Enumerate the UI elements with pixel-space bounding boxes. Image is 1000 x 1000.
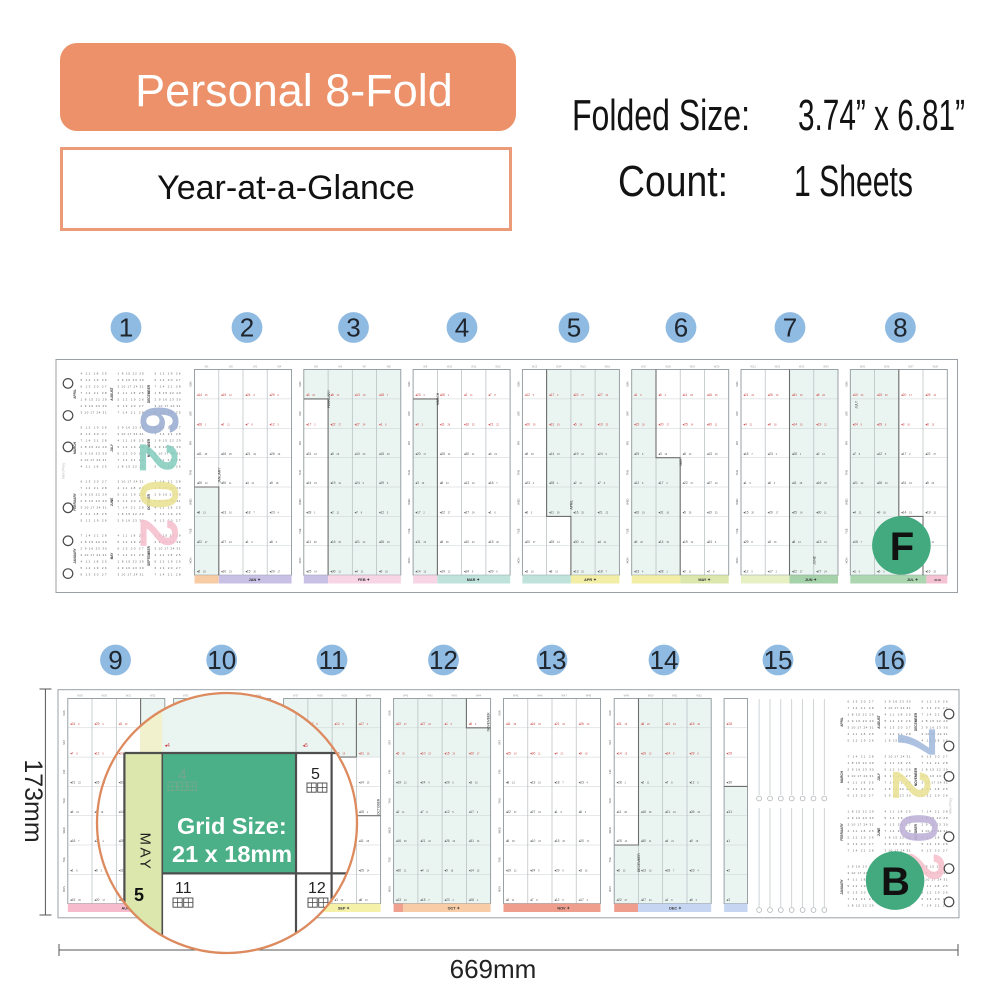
svg-text:0: 0 [129, 479, 189, 509]
svg-text:OCTOBER: OCTOBER [377, 798, 381, 815]
svg-text:◂234: ◂234 [525, 481, 535, 485]
svg-text:APRIL: APRIL [840, 717, 844, 727]
svg-text:◂296: ◂296 [444, 781, 454, 785]
svg-text:MON: MON [844, 557, 848, 563]
svg-text:W7: W7 [362, 365, 366, 369]
svg-text:◂187: ◂187 [554, 781, 564, 785]
svg-text:◂249: ◂249 [355, 481, 365, 485]
svg-text:W45: W45 [513, 694, 519, 698]
svg-text:W12: W12 [495, 365, 501, 369]
svg-text:FRI: FRI [407, 441, 411, 445]
svg-text:W1: W1 [205, 365, 209, 369]
svg-text:◂28: ◂28 [726, 722, 732, 726]
svg-text:◂249: ◂249 [597, 452, 607, 456]
svg-text:THU: THU [407, 470, 411, 475]
svg-text:◂125: ◂125 [269, 423, 279, 427]
svg-text:7: 7 [886, 727, 946, 757]
svg-text:SAT: SAT [498, 740, 502, 745]
svg-text:TUE: TUE [298, 528, 302, 533]
svg-text:FRI: FRI [62, 769, 66, 773]
svg-text:◂125: ◂125 [94, 751, 104, 755]
svg-text:5: 5 [311, 766, 320, 783]
svg-text:◂125: ◂125 [877, 452, 887, 456]
svg-text:MON: MON [407, 557, 411, 563]
svg-text:3 10 17 24 31: 3 10 17 24 31 [118, 573, 144, 577]
svg-text:◂187: ◂187 [488, 481, 498, 485]
svg-text:SUN: SUN [298, 381, 302, 387]
svg-text:WED: WED [516, 499, 520, 505]
svg-text:◂281: ◂281 [440, 393, 450, 397]
svg-text:◂281: ◂281 [792, 452, 802, 456]
svg-text:8: 8 [893, 313, 907, 343]
svg-text:◂2: ◂2 [726, 869, 730, 873]
svg-text:◂296: ◂296 [877, 423, 887, 427]
svg-text:2 9 16 23 30: 2 9 16 23 30 [848, 719, 874, 723]
svg-text:◂125: ◂125 [444, 810, 454, 814]
svg-text:1 Sheets: 1 Sheets [794, 157, 913, 206]
svg-text:◂125: ◂125 [525, 393, 535, 397]
svg-text:◂125: ◂125 [379, 511, 389, 515]
svg-text:DEC ✦: DEC ✦ [669, 907, 682, 911]
svg-text:◂281: ◂281 [306, 511, 316, 515]
svg-text:FEBRUARY: FEBRUARY [73, 492, 77, 510]
svg-text:MAR ✦: MAR ✦ [467, 578, 481, 582]
svg-text:JAN ✦: JAN ✦ [249, 578, 262, 582]
svg-text:THU: THU [298, 470, 302, 475]
svg-text:W51: W51 [672, 694, 678, 698]
svg-text:◂5: ◂5 [303, 743, 309, 749]
svg-text:F: F [890, 525, 914, 569]
svg-text:◂187: ◂187 [665, 869, 675, 873]
svg-text:THU: THU [626, 470, 630, 475]
svg-text:W3: W3 [253, 365, 257, 369]
svg-text:◂296: ◂296 [634, 452, 644, 456]
svg-text:MON: MON [608, 886, 612, 892]
svg-text:DECEMBER: DECEMBER [637, 853, 641, 872]
svg-text:W22: W22 [775, 365, 781, 369]
svg-text:MAY: MAY [679, 458, 683, 466]
svg-text:2 9 16 23 30: 2 9 16 23 30 [81, 547, 107, 551]
svg-text:SAT: SAT [62, 740, 66, 745]
svg-text:2 9 16 23 30: 2 9 16 23 30 [155, 398, 181, 402]
svg-text:◂249: ◂249 [245, 393, 255, 397]
svg-text:WED: WED [626, 499, 630, 505]
svg-text:AUGUST: AUGUST [110, 387, 114, 401]
svg-text:JANUARY: JANUARY [840, 878, 844, 894]
svg-text:MARCH: MARCH [436, 392, 440, 405]
svg-text:W39: W39 [342, 694, 348, 698]
svg-text:◂296: ◂296 [743, 540, 753, 544]
svg-text:TUE: TUE [844, 528, 848, 533]
svg-text:2: 2 [240, 313, 254, 343]
svg-text:12: 12 [429, 645, 458, 675]
svg-text:SAT: SAT [844, 411, 848, 416]
svg-text:WED: WED [608, 827, 612, 833]
svg-text:12: 12 [308, 880, 326, 897]
svg-text:11: 11 [175, 880, 192, 897]
svg-text:SUN: SUN [498, 710, 502, 716]
svg-text:WED: WED [62, 827, 66, 833]
svg-text:◂296: ◂296 [554, 869, 564, 873]
svg-text:SAT: SAT [608, 740, 612, 745]
svg-text:◂125: ◂125 [743, 569, 753, 573]
svg-text:9: 9 [108, 645, 122, 675]
svg-text:FEB ✦: FEB ✦ [358, 578, 371, 582]
svg-text:JUNE: JUNE [813, 555, 817, 564]
svg-text:MON: MON [626, 557, 630, 563]
svg-text:WED: WED [189, 499, 193, 505]
svg-text:W6: W6 [338, 365, 342, 369]
svg-text:◂4: ◂4 [165, 743, 171, 749]
svg-text:MON: MON [298, 557, 302, 563]
svg-text:JUL ✦: JUL ✦ [907, 578, 919, 582]
svg-text:2: 2 [129, 518, 189, 548]
svg-text:◂234: ◂234 [634, 569, 644, 573]
svg-text:MON: MON [516, 557, 520, 563]
svg-text:W42: W42 [427, 694, 433, 698]
svg-text:APRIL: APRIL [569, 500, 573, 510]
svg-text:◂187: ◂187 [420, 898, 430, 902]
svg-text:2: 2 [128, 442, 188, 472]
svg-text:1 8 15 22 29: 1 8 15 22 29 [118, 560, 144, 564]
svg-text:SAT: SAT [407, 411, 411, 416]
svg-text:SUN: SUN [844, 381, 848, 387]
svg-text:2 9 16 23 30: 2 9 16 23 30 [848, 768, 874, 772]
svg-text:FRI: FRI [608, 769, 612, 773]
svg-text:SAT: SAT [388, 740, 392, 745]
svg-text:◂281: ◂281 [616, 781, 626, 785]
svg-text:TUE: TUE [189, 528, 193, 533]
svg-text:1 8 15 22 29: 1 8 15 22 29 [118, 512, 144, 516]
svg-text:DECEMBER: DECEMBER [147, 384, 151, 403]
svg-text:SUN: SUN [608, 710, 612, 716]
svg-text:W38: W38 [317, 694, 323, 698]
svg-text:W10: W10 [447, 365, 453, 369]
svg-text:THU: THU [189, 470, 193, 475]
svg-text:◂172: ◂172 [768, 569, 778, 573]
svg-text:1 8 15 22 29: 1 8 15 22 29 [848, 761, 874, 765]
svg-text:W29: W29 [77, 694, 83, 698]
svg-text:◂172: ◂172 [658, 481, 668, 485]
svg-text:W44: W44 [476, 694, 482, 698]
svg-text:W8: W8 [387, 365, 391, 369]
svg-text:MON: MON [189, 557, 193, 563]
svg-text:TUE: TUE [407, 528, 411, 533]
svg-text:THU: THU [608, 798, 612, 803]
svg-text:◂281: ◂281 [469, 898, 479, 902]
svg-text:2 9 16 23 30: 2 9 16 23 30 [118, 378, 144, 382]
svg-text:FRI: FRI [388, 769, 392, 773]
svg-text:MinoPlay: MinoPlay [948, 798, 953, 814]
svg-text:6: 6 [129, 405, 189, 435]
svg-text:669mm: 669mm [450, 954, 537, 984]
svg-text:WED: WED [844, 499, 848, 505]
svg-text:◂187: ◂187 [597, 569, 607, 573]
svg-text:THU: THU [516, 470, 520, 475]
svg-text:W2: W2 [229, 365, 233, 369]
svg-text:6: 6 [674, 313, 688, 343]
svg-text:3 10 17 24 31: 3 10 17 24 31 [848, 726, 874, 730]
svg-text:5: 5 [134, 885, 144, 905]
svg-text:W23: W23 [799, 365, 805, 369]
svg-text:3 10 17 24 31: 3 10 17 24 31 [848, 774, 874, 778]
svg-text:◂125: ◂125 [634, 481, 644, 485]
svg-text:W11: W11 [471, 365, 477, 369]
svg-text:TUE: TUE [608, 857, 612, 862]
svg-text:W41: W41 [403, 694, 409, 698]
svg-text:W24: W24 [823, 365, 829, 369]
svg-text:1 8 15 22 29: 1 8 15 22 29 [81, 493, 107, 497]
svg-text:4: 4 [455, 313, 469, 343]
svg-text:W33: W33 [183, 694, 189, 698]
svg-text:FRI: FRI [298, 441, 302, 445]
svg-text:◂281: ◂281 [197, 423, 207, 427]
svg-text:◂31: ◂31 [726, 810, 732, 814]
svg-text:SEP ✦: SEP ✦ [338, 907, 351, 911]
svg-text:2 9 16 23 30: 2 9 16 23 30 [81, 404, 107, 408]
svg-text:◂249: ◂249 [420, 781, 430, 785]
svg-text:MARCH: MARCH [73, 441, 77, 454]
svg-text:TUE: TUE [388, 857, 392, 862]
svg-text:SUN: SUN [516, 381, 520, 387]
svg-text:FEBRUARY: FEBRUARY [840, 822, 844, 840]
svg-text:W28: W28 [933, 365, 939, 369]
svg-text:W46: W46 [537, 694, 543, 698]
svg-text:2 9 16 23 30: 2 9 16 23 30 [81, 499, 107, 503]
svg-text:TUE: TUE [735, 528, 739, 533]
svg-text:W15: W15 [580, 365, 586, 369]
svg-text:◂296: ◂296 [689, 751, 699, 755]
svg-text:1 8 15 22 29: 1 8 15 22 29 [81, 445, 107, 449]
svg-text:1: 1 [119, 313, 133, 343]
svg-text:SAT: SAT [298, 411, 302, 416]
svg-text:MinoPlay: MinoPlay [61, 463, 66, 479]
svg-text:1 8 15 22 29: 1 8 15 22 29 [922, 719, 948, 723]
svg-text:NOVEMBER: NOVEMBER [487, 712, 491, 731]
svg-text:W32: W32 [150, 694, 156, 698]
svg-text:WED: WED [735, 499, 739, 505]
svg-text:SUN: SUN [388, 710, 392, 716]
svg-text:◂234: ◂234 [269, 511, 279, 515]
svg-text:FRI: FRI [189, 441, 193, 445]
svg-text:1 8 15 22 29: 1 8 15 22 29 [848, 810, 874, 814]
svg-text:◂296: ◂296 [269, 393, 279, 397]
svg-text:◂249: ◂249 [464, 569, 474, 573]
svg-text:JANUARY: JANUARY [218, 467, 222, 483]
svg-text:◂172: ◂172 [469, 810, 479, 814]
svg-text:◂234: ◂234 [415, 393, 425, 397]
svg-text:FEBRUARY: FEBRUARY [327, 389, 331, 408]
svg-text:◂187: ◂187 [245, 511, 255, 515]
svg-text:WED: WED [298, 499, 302, 505]
svg-text:◂249: ◂249 [707, 540, 717, 544]
svg-text:W48: W48 [586, 694, 592, 698]
svg-text:2: 2 [881, 770, 941, 800]
svg-text:◂1: ◂1 [726, 839, 730, 843]
svg-text:3.74” x 6.81”: 3.74” x 6.81” [798, 91, 965, 140]
svg-text:2 9 16 23 30: 2 9 16 23 30 [118, 566, 144, 570]
svg-text:TUE: TUE [498, 857, 502, 862]
svg-text:◂249: ◂249 [70, 722, 80, 726]
svg-text:21 x 18mm: 21 x 18mm [172, 841, 292, 867]
svg-text:SAT: SAT [516, 411, 520, 416]
svg-text:◂172: ◂172 [415, 511, 425, 515]
svg-text:◂125: ◂125 [689, 781, 699, 785]
svg-text:W27: W27 [908, 365, 914, 369]
svg-text:14: 14 [650, 645, 679, 675]
svg-text:THU: THU [735, 470, 739, 475]
svg-text:W16: W16 [605, 365, 611, 369]
svg-text:Grid Size:: Grid Size: [177, 813, 287, 839]
svg-text:4: 4 [178, 767, 187, 784]
svg-text:173mm: 173mm [19, 759, 47, 842]
svg-text:◂172: ◂172 [306, 423, 316, 427]
svg-text:1 8 15 22 29: 1 8 15 22 29 [155, 391, 181, 395]
svg-text:APRIL: APRIL [73, 389, 77, 399]
svg-text:11: 11 [319, 645, 346, 675]
svg-text:MON: MON [388, 886, 392, 892]
svg-text:W21: W21 [750, 365, 756, 369]
svg-text:THU: THU [844, 470, 848, 475]
svg-text:W49: W49 [624, 694, 630, 698]
svg-text:◂30: ◂30 [726, 781, 732, 785]
svg-text:◂172: ◂172 [549, 393, 559, 397]
svg-text:WED: WED [388, 827, 392, 833]
svg-text:◂172: ◂172 [579, 898, 589, 902]
svg-text:◂187: ◂187 [853, 540, 863, 544]
svg-text:JUN ✦: JUN ✦ [805, 578, 818, 582]
svg-text:JUNE: JUNE [877, 828, 881, 837]
svg-text:W14: W14 [556, 365, 562, 369]
svg-text:W18: W18 [665, 365, 671, 369]
svg-text:16: 16 [876, 645, 905, 675]
svg-text:THU: THU [62, 798, 66, 803]
svg-text:W26: W26 [884, 365, 890, 369]
svg-text:1 8 15 22 29: 1 8 15 22 29 [118, 372, 144, 376]
svg-text:JULY: JULY [877, 772, 881, 781]
svg-text:◂234: ◂234 [579, 781, 589, 785]
svg-text:OCT ✦: OCT ✦ [448, 907, 461, 911]
svg-text:◂296: ◂296 [379, 481, 389, 485]
svg-text:3: 3 [346, 313, 360, 343]
svg-text:1 8 15 22 29: 1 8 15 22 29 [848, 713, 874, 717]
svg-text:◂296: ◂296 [488, 569, 498, 573]
svg-text:◂281: ◂281 [359, 810, 369, 814]
svg-text:FRI: FRI [735, 441, 739, 445]
svg-text:◂234: ◂234 [444, 898, 454, 902]
svg-text:1 8 15 22 29: 1 8 15 22 29 [848, 904, 874, 908]
svg-text:MAY: MAY [137, 833, 154, 872]
svg-text:◂249: ◂249 [530, 869, 540, 873]
svg-text:7: 7 [783, 313, 797, 343]
svg-text:W43: W43 [452, 694, 458, 698]
svg-text:◂187: ◂187 [379, 393, 389, 397]
svg-text:3 10 17 24 31: 3 10 17 24 31 [81, 411, 107, 415]
svg-text:1 8 15 22 29: 1 8 15 22 29 [81, 540, 107, 544]
svg-text:SEPTEMBER: SEPTEMBER [147, 545, 151, 566]
svg-text:3 10 17 24 31: 3 10 17 24 31 [81, 553, 107, 557]
svg-text:W25: W25 [860, 365, 866, 369]
svg-text:5: 5 [567, 313, 581, 343]
svg-text:SUN: SUN [189, 381, 193, 387]
svg-text:◂172: ◂172 [359, 722, 369, 726]
svg-text:W19: W19 [690, 365, 696, 369]
svg-text:SAT: SAT [735, 411, 739, 416]
svg-text:◂187: ◂187 [743, 452, 753, 456]
svg-text:W30: W30 [102, 694, 108, 698]
svg-text:◂234: ◂234 [768, 452, 778, 456]
svg-text:W31: W31 [126, 694, 132, 698]
svg-text:15: 15 [764, 645, 793, 675]
svg-text:◂187: ◂187 [70, 839, 80, 843]
svg-text:◂281: ◂281 [549, 481, 559, 485]
svg-text:3 10 17 24 31: 3 10 17 24 31 [118, 385, 144, 389]
svg-text:3 10 17 24 31: 3 10 17 24 31 [81, 506, 107, 510]
svg-text:W9: W9 [423, 365, 427, 369]
svg-text:◂281: ◂281 [658, 569, 668, 573]
svg-text:NOV ✦: NOV ✦ [557, 907, 570, 911]
svg-text:JULY: JULY [854, 400, 858, 409]
svg-text:SUN: SUN [735, 381, 739, 387]
svg-text:3 10 17 24 31: 3 10 17 24 31 [81, 458, 107, 462]
svg-text:◂3: ◂3 [726, 898, 730, 902]
svg-text:W40: W40 [366, 694, 372, 698]
svg-text:2 9 16 23 30: 2 9 16 23 30 [81, 452, 107, 456]
svg-text:JANUARY: JANUARY [73, 547, 77, 563]
svg-text:2 9 16 23 30: 2 9 16 23 30 [848, 816, 874, 820]
svg-text:Folded Size:: Folded Size: [572, 91, 750, 140]
svg-text:2 9 16 23 30: 2 9 16 23 30 [885, 700, 911, 704]
svg-text:W5: W5 [314, 365, 318, 369]
svg-text:◂296: ◂296 [94, 722, 104, 726]
svg-text:3 10 17 24 31: 3 10 17 24 31 [848, 823, 874, 827]
svg-text:JUNE: JUNE [110, 498, 114, 507]
svg-text:TUE: TUE [626, 528, 630, 533]
svg-text:◂249: ◂249 [665, 751, 675, 755]
svg-text:W20: W20 [714, 365, 720, 369]
svg-text:TUE: TUE [62, 857, 66, 862]
svg-text:B: B [881, 860, 910, 904]
svg-text:SAT: SAT [626, 411, 630, 416]
svg-text:WED: WED [407, 499, 411, 505]
svg-text:Count:: Count: [618, 157, 728, 206]
svg-text:W52: W52 [696, 694, 702, 698]
svg-text:13: 13 [538, 645, 567, 675]
svg-text:FRI: FRI [844, 441, 848, 445]
svg-text:AUG: AUG [934, 578, 941, 582]
svg-text:0: 0 [888, 813, 948, 843]
svg-text:FRI: FRI [626, 441, 630, 445]
svg-text:MARCH: MARCH [840, 770, 844, 783]
svg-text:FRI: FRI [498, 769, 502, 773]
svg-text:W13: W13 [532, 365, 538, 369]
svg-text:AUGUST: AUGUST [877, 715, 881, 729]
svg-text:SUN: SUN [626, 381, 630, 387]
svg-text:W50: W50 [648, 694, 654, 698]
svg-text:W37: W37 [293, 694, 299, 698]
svg-text:MON: MON [62, 886, 66, 892]
svg-text:1 8 15 22 29: 1 8 15 22 29 [81, 398, 107, 402]
svg-text:10: 10 [207, 645, 236, 675]
svg-text:MAY: MAY [110, 552, 114, 560]
svg-text:SUN: SUN [407, 381, 411, 387]
svg-text:MON: MON [498, 886, 502, 892]
svg-text:WED: WED [498, 827, 502, 833]
svg-text:TUE: TUE [516, 528, 520, 533]
svg-text:THU: THU [388, 798, 392, 803]
svg-text:◂125: ◂125 [334, 722, 344, 726]
svg-text:MON: MON [735, 557, 739, 563]
